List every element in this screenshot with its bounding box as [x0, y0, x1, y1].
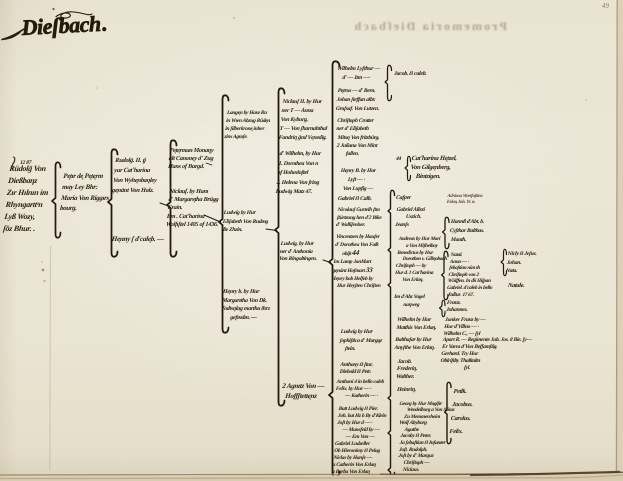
svg-text:Dieſbach .: Dieſbach .	[20, 11, 108, 40]
